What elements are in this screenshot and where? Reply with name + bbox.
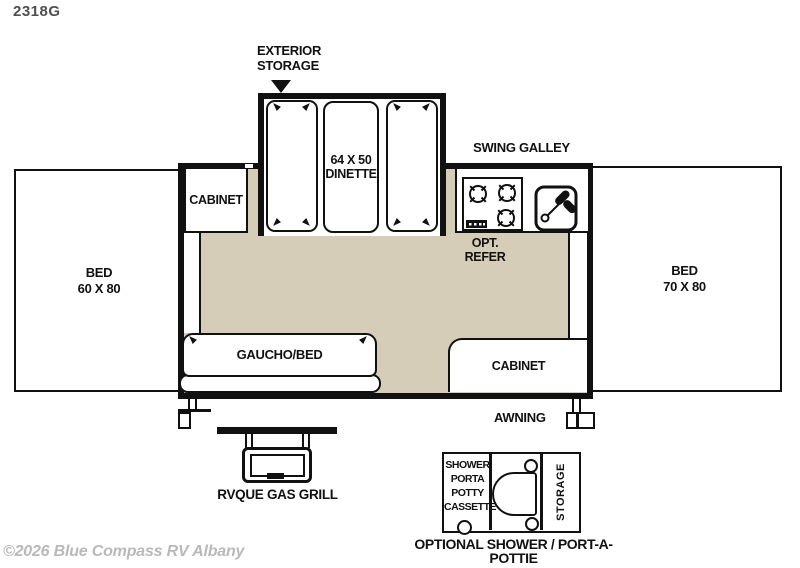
interior-strip-right [568,233,587,338]
model-number-label: 2318G [13,5,61,19]
cabinet-top: CABINET [184,169,248,233]
dinette-table-label: 64 X 50 DINETTE [325,153,376,181]
optional-shower-label: OPTIONAL SHOWER / PORT-A-POTTIE [395,537,632,565]
toilet-icon [492,472,537,516]
storage-section: STORAGE [542,454,580,530]
gas-grill-handle [267,473,284,479]
cabinet-top-label: CABINET [189,193,242,207]
bed-right-label: BED 70 X 80 [663,263,706,295]
gaucho-bed-label: GAUCHO/BED [237,348,323,362]
sink-icon [534,185,578,232]
opt-refer-label: OPT. REFER [460,236,510,264]
exterior-storage-arrow-icon [271,80,291,93]
stabilizer-foot-right [566,412,595,429]
pottie-cap-icon [525,517,539,531]
bed-left-label: BED 60 X 80 [78,265,121,297]
awning-label: AWNING [494,411,546,425]
wall-notch [245,164,253,168]
grill-support [302,434,310,448]
stabilizer-leg-right [572,398,581,412]
dinette-seat-right [386,100,438,232]
floorplan-canvas: 2318G BED 60 X 80 BED 70 X 80 CABINET EX… [0,0,800,568]
cabinet-bottom-label: CABINET [492,359,545,373]
cabinet-bottom: CABINET [448,338,587,392]
stove-icon [462,177,523,231]
dinette-seat-left [266,100,318,232]
watermark: ©2026 Blue Compass RV Albany [3,545,244,559]
shower-pottie-unit: SHOWER PORTA POTTY CASSETTE STORAGE [442,452,581,533]
pottie-cap-icon [524,459,538,473]
exterior-storage-label: EXTERIOR STORAGE [257,44,321,73]
bed-left: BED 60 X 80 [14,169,184,392]
stabilizer-foot-left [178,412,191,429]
gaucho-bed: GAUCHO/BED [182,333,377,377]
bed-right: BED 70 X 80 [587,166,782,392]
grill-mount-bar [217,427,337,434]
stabilizer-foot-right-line [576,412,579,429]
swing-galley-label: SWING GALLEY [455,141,588,155]
shower-drain-icon [457,520,472,535]
dinette-table: 64 X 50 DINETTE [323,101,379,233]
grill-support [245,434,253,448]
shower-stack-label: SHOWER PORTA POTTY CASSETTE [444,458,491,514]
storage-label: STORAGE [554,463,568,521]
grill-label: RVQUE GAS GRILL [200,488,355,502]
interior-strip-left [184,233,201,333]
